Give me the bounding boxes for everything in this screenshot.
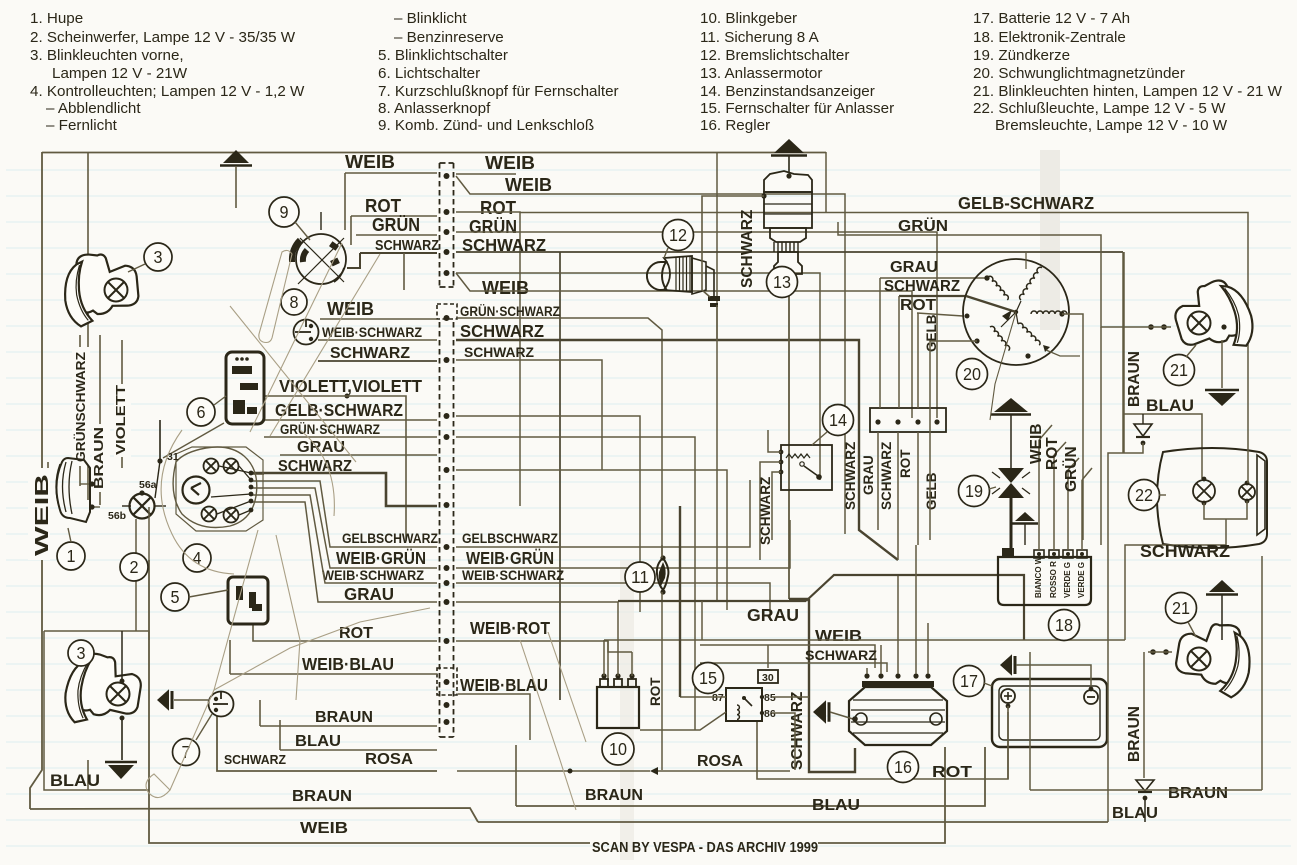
svg-text:1. Hupe: 1. Hupe	[30, 10, 83, 27]
svg-text:10. Blinkgeber: 10. Blinkgeber	[700, 10, 797, 27]
svg-text:ROSA: ROSA	[697, 753, 743, 770]
svg-text:BRAUN: BRAUN	[1126, 706, 1143, 762]
svg-text:GELB·SCHWARZ: GELB·SCHWARZ	[275, 400, 403, 420]
svg-text:6. Lichtschalter: 6. Lichtschalter	[378, 65, 480, 82]
svg-text:WEIB: WEIB	[485, 153, 535, 173]
svg-text:GELB-SCHWARZ: GELB-SCHWARZ	[958, 193, 1094, 213]
svg-text:WEIB: WEIB	[300, 820, 348, 837]
svg-text:SCHWARZ: SCHWARZ	[460, 321, 544, 341]
svg-text:2: 2	[130, 557, 139, 577]
svg-text:11. Sicherung 8 A: 11. Sicherung 8 A	[700, 29, 820, 46]
svg-text:17. Batterie 12 V - 7 Ah: 17. Batterie 12 V - 7 Ah	[973, 10, 1130, 27]
svg-text:3: 3	[154, 247, 163, 267]
svg-text:BLAU: BLAU	[50, 771, 100, 790]
svg-text:85: 85	[764, 692, 776, 704]
svg-text:18. Elektronik-Zentrale: 18. Elektronik-Zentrale	[973, 29, 1126, 46]
svg-text:20. Schwunglichtmagnetzünder: 20. Schwunglichtmagnetzünder	[973, 65, 1185, 82]
svg-text:13: 13	[773, 272, 791, 292]
svg-text:VIOLETT: VIOLETT	[113, 385, 128, 455]
svg-text:GRAU: GRAU	[890, 259, 938, 276]
svg-text:Bremsleuchte, Lampe 12 V - 10: Bremsleuchte, Lampe 12 V - 10 W	[995, 117, 1228, 134]
svg-text:SCHWARZ: SCHWARZ	[330, 345, 410, 362]
svg-text:WEIB: WEIB	[345, 152, 395, 172]
svg-text:16. Regler: 16. Regler	[700, 117, 770, 134]
svg-text:BLAU: BLAU	[1146, 396, 1194, 415]
svg-text:– Blinklicht: – Blinklicht	[394, 10, 467, 27]
svg-text:WEIB·SCHWARZ: WEIB·SCHWARZ	[322, 568, 424, 583]
svg-text:SCHWARZ: SCHWARZ	[464, 345, 534, 360]
svg-text:1: 1	[67, 546, 76, 566]
svg-text:BLAU: BLAU	[295, 733, 341, 750]
svg-text:5: 5	[171, 587, 180, 607]
svg-text:WEIB: WEIB	[32, 474, 52, 556]
svg-text:87: 87	[712, 692, 724, 704]
svg-text:10: 10	[609, 739, 627, 759]
svg-text:ROT: ROT	[365, 196, 401, 216]
svg-text:30: 30	[762, 672, 774, 684]
svg-text:3. Blinkleuchten vorne,: 3. Blinkleuchten vorne,	[30, 47, 184, 64]
svg-text:VERDE G: VERDE G	[1077, 562, 1086, 598]
svg-text:WEIB·GRÜN: WEIB·GRÜN	[466, 548, 554, 568]
svg-text:12. Bremslichtschalter: 12. Bremslichtschalter	[700, 47, 849, 64]
svg-text:9: 9	[280, 202, 289, 222]
svg-text:SCHWARZ: SCHWARZ	[789, 691, 806, 770]
svg-text:21. Blinkleuchten hinten, Lamp: 21. Blinkleuchten hinten, Lampen 12 V - …	[973, 83, 1283, 100]
svg-text:GRÜNSCHWARZ: GRÜNSCHWARZ	[73, 352, 88, 462]
svg-text:22: 22	[1135, 485, 1153, 505]
svg-text:19. Zündkerze: 19. Zündkerze	[973, 47, 1070, 64]
svg-text:GELB: GELB	[924, 472, 939, 510]
svg-text:BLAU: BLAU	[1112, 805, 1158, 822]
svg-text:BRAUN: BRAUN	[315, 709, 373, 726]
svg-text:18: 18	[1055, 615, 1073, 635]
svg-text:SCHWARZ: SCHWARZ	[739, 209, 756, 288]
svg-text:12: 12	[669, 225, 687, 245]
svg-text:21: 21	[1170, 360, 1188, 380]
svg-text:14: 14	[829, 410, 847, 430]
svg-text:WEIB·SCHWARZ: WEIB·SCHWARZ	[462, 568, 564, 583]
svg-text:GELBSCHWARZ: GELBSCHWARZ	[462, 531, 558, 546]
svg-text:8: 8	[290, 292, 299, 312]
svg-text:13. Anlassermotor: 13. Anlassermotor	[700, 65, 822, 82]
svg-text:VERDE G: VERDE G	[1063, 562, 1072, 598]
svg-text:ROT: ROT	[480, 198, 516, 218]
svg-text:WEIB: WEIB	[482, 278, 529, 298]
svg-text:22. Schlußleuchte, Lampe 12 V: 22. Schlußleuchte, Lampe 12 V - 5 W	[973, 100, 1226, 117]
svg-text:15. Fernschalter für Anlasser: 15. Fernschalter für Anlasser	[700, 100, 894, 117]
svg-text:GRAU: GRAU	[861, 455, 876, 495]
svg-text:11: 11	[631, 567, 649, 587]
svg-text:SCHWARZ: SCHWARZ	[843, 442, 858, 510]
svg-text:BRAUN: BRAUN	[91, 427, 106, 489]
svg-text:ROT: ROT	[1044, 437, 1061, 470]
svg-text:19: 19	[965, 481, 983, 501]
svg-text:ROSSO R: ROSSO R	[1049, 561, 1058, 598]
svg-text:BRAUN: BRAUN	[585, 787, 643, 804]
svg-text:4. Kontrolleuchten; Lampen 12: 4. Kontrolleuchten; Lampen 12 V - 1,2 W	[30, 83, 305, 100]
svg-text:SCHWARZ: SCHWARZ	[1140, 541, 1230, 561]
svg-text:8. Anlasserknopf: 8. Anlasserknopf	[378, 100, 491, 117]
svg-text:WEIB: WEIB	[1028, 424, 1045, 464]
svg-text:– Fernlicht: – Fernlicht	[46, 117, 118, 134]
svg-text:SCHWARZ: SCHWARZ	[879, 442, 894, 510]
svg-text:SCHWARZ: SCHWARZ	[224, 752, 286, 767]
svg-text:GRAU: GRAU	[344, 584, 394, 604]
svg-text:Lampen 12 V - 21W: Lampen 12 V - 21W	[52, 65, 188, 82]
svg-text:21: 21	[1172, 598, 1190, 618]
svg-text:– Benzinreserve: – Benzinreserve	[394, 29, 504, 46]
svg-text:ROT: ROT	[648, 677, 663, 706]
svg-text:SCHWARZ: SCHWARZ	[758, 477, 773, 545]
svg-text:BRAUN: BRAUN	[1168, 785, 1228, 802]
svg-text:– Abblendlicht: – Abblendlicht	[46, 100, 141, 117]
svg-text:17: 17	[960, 671, 978, 691]
svg-text:16: 16	[894, 757, 912, 777]
svg-text:GELB: GELB	[924, 314, 939, 352]
svg-text:20: 20	[963, 364, 981, 384]
svg-text:BIANCO W: BIANCO W	[1034, 556, 1043, 598]
svg-text:GRAU: GRAU	[747, 605, 799, 625]
svg-text:14. Benzinstandsanzeiger: 14. Benzinstandsanzeiger	[700, 83, 875, 100]
svg-text:ROT: ROT	[900, 297, 937, 314]
svg-text:SCAN BY VESPA - DAS ARCHIV 199: SCAN BY VESPA - DAS ARCHIV 1999	[592, 840, 818, 856]
svg-text:GRÜN: GRÜN	[898, 218, 948, 235]
svg-text:ROSA: ROSA	[365, 751, 413, 768]
svg-text:GRÜN: GRÜN	[469, 217, 517, 237]
svg-text:SCHWARZ: SCHWARZ	[375, 237, 439, 254]
svg-text:5. Blinklichtschalter: 5. Blinklichtschalter	[378, 47, 508, 64]
svg-text:56a: 56a	[139, 479, 157, 491]
svg-text:GELBSCHWARZ: GELBSCHWARZ	[342, 531, 438, 546]
svg-text:86: 86	[764, 708, 776, 720]
svg-text:WEIB·BLAU: WEIB·BLAU	[302, 654, 394, 674]
svg-text:SCHWARZ: SCHWARZ	[805, 648, 877, 663]
svg-text:BLAU: BLAU	[812, 797, 860, 814]
svg-text:GRÜN: GRÜN	[372, 215, 420, 235]
svg-text:WEIB: WEIB	[505, 175, 552, 195]
svg-text:9. Komb. Zünd- und Lenkschloß: 9. Komb. Zünd- und Lenkschloß	[378, 117, 594, 134]
svg-text:WEIB: WEIB	[815, 628, 862, 645]
svg-text:3: 3	[77, 643, 86, 663]
svg-text:GRÜN·SCHWARZ: GRÜN·SCHWARZ	[460, 304, 560, 319]
svg-text:6: 6	[197, 402, 206, 422]
svg-text:SCHWARZ: SCHWARZ	[884, 278, 961, 295]
svg-text:BRAUN: BRAUN	[292, 788, 352, 805]
svg-text:7. Kurzschlußknopf für Fernsch: 7. Kurzschlußknopf für Fernschalter	[378, 83, 619, 100]
svg-text:GRÜN: GRÜN	[1063, 446, 1080, 492]
svg-text:WEIB·ROT: WEIB·ROT	[470, 618, 550, 638]
svg-text:15: 15	[699, 668, 717, 688]
svg-text:ROT: ROT	[898, 449, 913, 478]
svg-text:WEIB·SCHWARZ: WEIB·SCHWARZ	[322, 325, 422, 340]
svg-text:7: 7	[182, 742, 191, 762]
svg-text:2. Scheinwerfer, Lampe 12 V -: 2. Scheinwerfer, Lampe 12 V - 35/35 W	[30, 29, 296, 46]
svg-text:WEIB·GRÜN: WEIB·GRÜN	[336, 548, 426, 568]
svg-text:56b: 56b	[108, 510, 126, 522]
svg-text:BRAUN: BRAUN	[1126, 351, 1143, 407]
